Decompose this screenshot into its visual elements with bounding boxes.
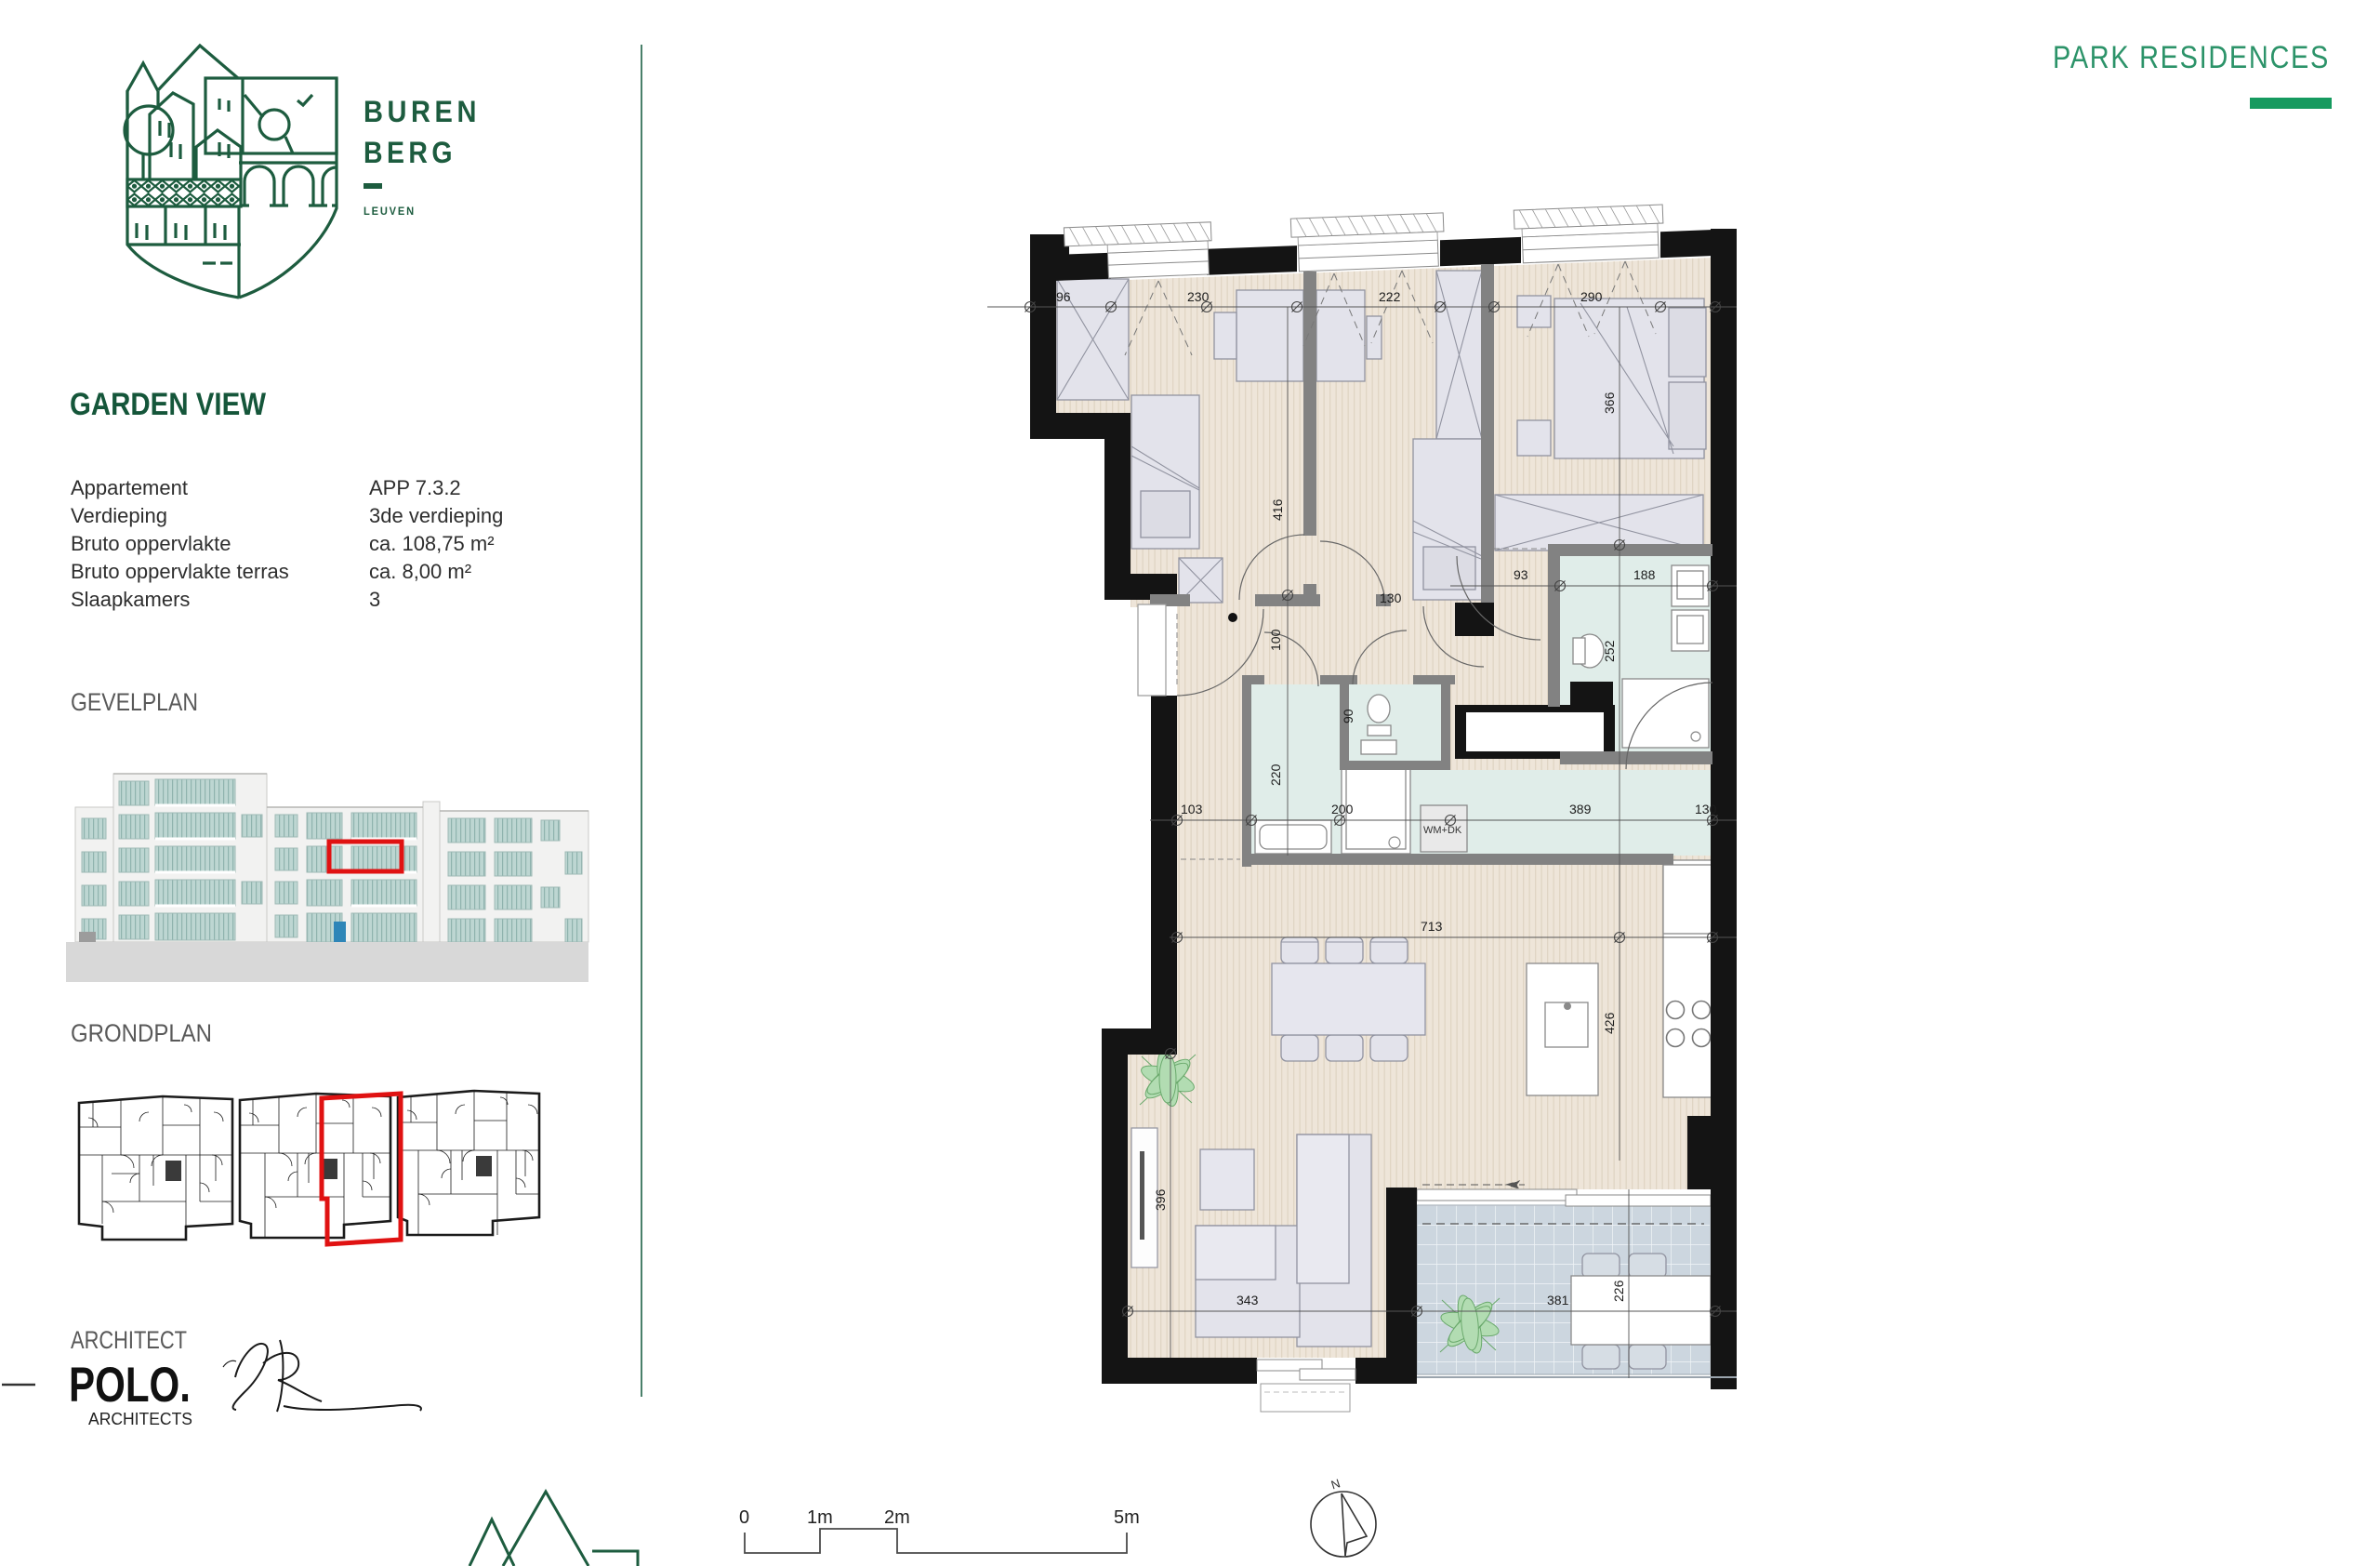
svg-text:381: 381 (1547, 1293, 1569, 1307)
svg-text:Bruto oppervlakte: Bruto oppervlakte (71, 532, 231, 555)
svg-text:0: 0 (739, 1507, 749, 1528)
svg-text:130: 130 (1380, 591, 1402, 605)
svg-text:1m: 1m (807, 1507, 833, 1528)
svg-text:713: 713 (1421, 919, 1443, 934)
svg-text:93: 93 (1514, 567, 1528, 582)
svg-text:222: 222 (1379, 289, 1401, 304)
svg-text:POLO.: POLO. (69, 1358, 191, 1413)
svg-text:343: 343 (1236, 1293, 1259, 1307)
svg-text:ca. 8,00 m²: ca. 8,00 m² (369, 560, 471, 583)
svg-text:188: 188 (1633, 567, 1656, 582)
svg-text:103: 103 (1181, 802, 1203, 816)
svg-text:226: 226 (1611, 1280, 1626, 1302)
svg-text:2m: 2m (884, 1507, 910, 1528)
svg-text:220: 220 (1268, 763, 1283, 786)
svg-text:3: 3 (369, 588, 380, 611)
svg-text:GRONDPLAN: GRONDPLAN (71, 1019, 212, 1047)
svg-text:ca. 108,75 m²: ca. 108,75 m² (369, 532, 495, 555)
svg-text:96: 96 (1056, 289, 1071, 304)
svg-text:WM+DK: WM+DK (1423, 825, 1462, 836)
svg-text:389: 389 (1569, 802, 1592, 816)
svg-text:GARDEN VIEW: GARDEN VIEW (70, 387, 267, 422)
svg-text:100: 100 (1268, 629, 1283, 651)
svg-text:90: 90 (1341, 709, 1355, 723)
svg-text:BUREN: BUREN (364, 95, 481, 128)
svg-text:290: 290 (1580, 289, 1603, 304)
svg-text:5m: 5m (1114, 1507, 1140, 1528)
svg-text:Bruto oppervlakte terras: Bruto oppervlakte terras (71, 560, 289, 583)
svg-text:252: 252 (1602, 640, 1617, 662)
svg-text:PARK RESIDENCES: PARK RESIDENCES (2053, 40, 2330, 75)
svg-text:Verdieping: Verdieping (71, 504, 167, 527)
svg-text:GEVELPLAN: GEVELPLAN (71, 688, 198, 716)
svg-text:LEUVEN: LEUVEN (364, 205, 416, 218)
svg-text:200: 200 (1331, 802, 1354, 816)
svg-text:Slaapkamers: Slaapkamers (71, 588, 190, 611)
svg-text:BERG: BERG (364, 136, 456, 169)
svg-text:396: 396 (1153, 1188, 1168, 1211)
svg-text:3de verdieping: 3de verdieping (369, 504, 503, 527)
svg-text:230: 230 (1187, 289, 1210, 304)
svg-text:APP 7.3.2: APP 7.3.2 (369, 476, 461, 499)
svg-text:ARCHITECT: ARCHITECT (71, 1326, 187, 1354)
svg-text:426: 426 (1602, 1012, 1617, 1034)
svg-text:416: 416 (1270, 498, 1285, 521)
svg-text:ARCHITECTS: ARCHITECTS (88, 1410, 192, 1428)
svg-text:366: 366 (1602, 391, 1617, 414)
svg-text:130: 130 (1695, 802, 1717, 816)
svg-text:Appartement: Appartement (71, 476, 188, 499)
